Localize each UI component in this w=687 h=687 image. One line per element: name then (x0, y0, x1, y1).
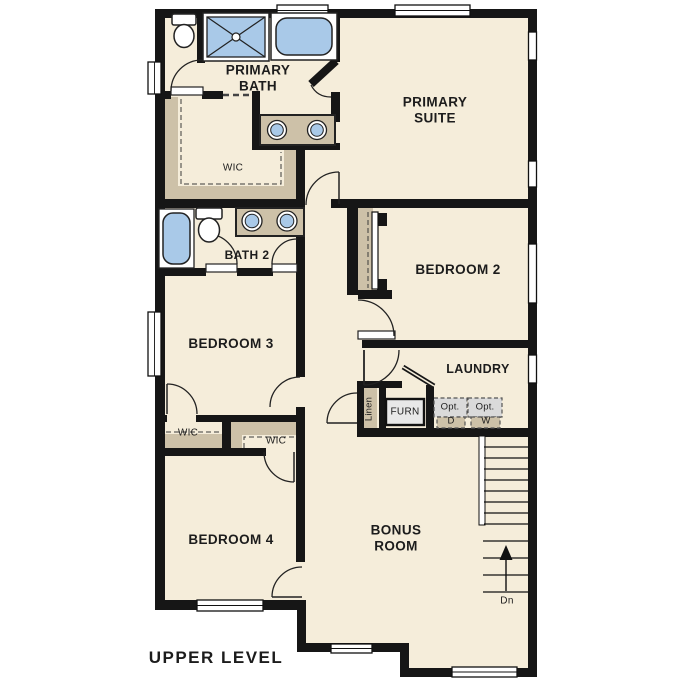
label-optional-washer: Opt. (476, 403, 495, 414)
label-furnace: FURN (391, 406, 420, 418)
room-label-bedroom4-wic: WIC (266, 435, 286, 447)
bathtub-fixture-primary (271, 13, 337, 60)
label-optional-washer-letter: W (481, 417, 490, 428)
room-label-bedroom2: BEDROOM 2 (415, 262, 500, 278)
toilet-fixture-primary (172, 14, 196, 48)
room-label-primary-suite: PRIMARY SUITE (403, 94, 468, 125)
bedroom2-closet-door (372, 212, 378, 289)
label-optional-dryer: Opt. (441, 403, 460, 414)
floor-plan: PRIMARY BATH PRIMARY SUITE WIC BATH 2 BE… (0, 0, 687, 687)
floor-plan-drawing (0, 0, 687, 687)
page-title: UPPER LEVEL (149, 648, 284, 668)
label-optional-dryer-letter: D (447, 417, 454, 428)
shower-fixture (203, 13, 269, 61)
room-label-laundry: LAUNDRY (446, 362, 509, 376)
bathtub-fixture-bath2 (159, 209, 194, 268)
room-label-bedroom4: BEDROOM 4 (188, 532, 273, 548)
room-label-primary-wic: WIC (223, 162, 243, 174)
label-stairs-down: Dn (500, 595, 513, 607)
room-label-primary-bath: PRIMARY BATH (226, 62, 291, 93)
toilet-fixture-bath2 (196, 208, 222, 242)
room-label-bonus-room: BONUS ROOM (371, 522, 422, 553)
room-label-bath2: BATH 2 (225, 249, 270, 263)
double-vanity-primary (260, 115, 335, 145)
room-label-bedroom3: BEDROOM 3 (188, 336, 273, 352)
double-vanity-bath2 (236, 208, 304, 236)
room-label-bedroom3-wic: WIC (178, 427, 198, 439)
label-linen-closet: Linen (365, 397, 376, 421)
